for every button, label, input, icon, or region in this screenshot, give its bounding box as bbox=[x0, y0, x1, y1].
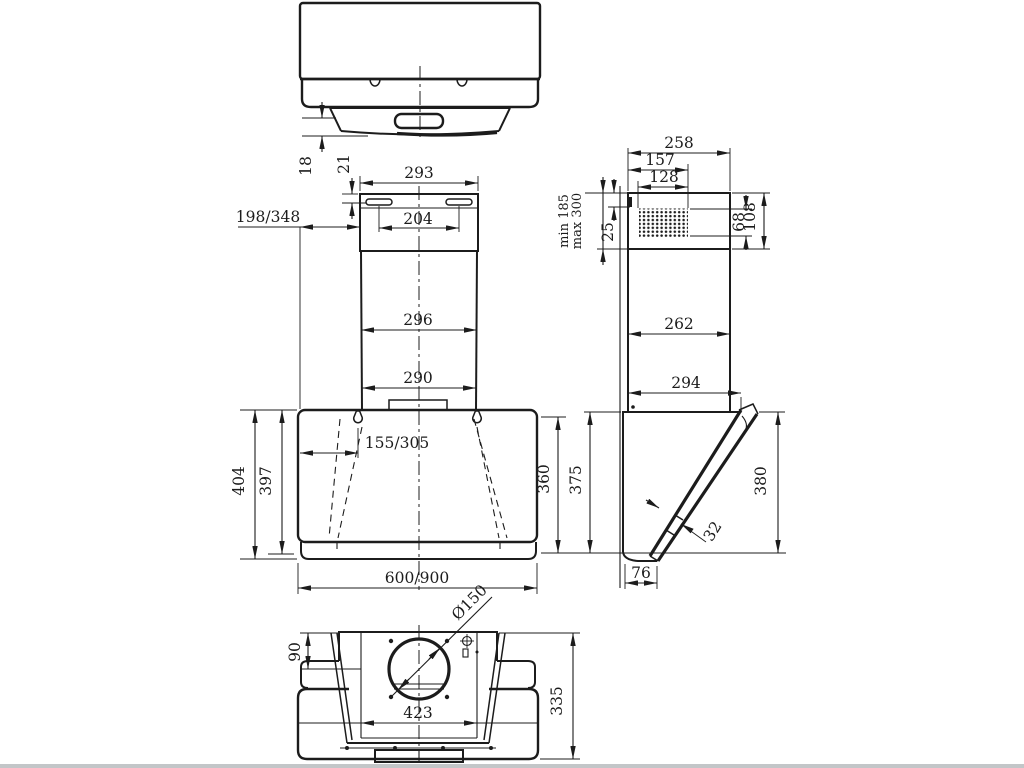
dim-404-label: 404 bbox=[230, 466, 248, 496]
drawing-page: 18 21 293 204 198/348 296 290 155/305 bbox=[0, 0, 1024, 768]
dim-375-label: 375 bbox=[567, 465, 585, 495]
dim-max-300-label: max 300 bbox=[570, 193, 585, 249]
filter-frame-slants bbox=[331, 633, 505, 743]
glass-top-cap bbox=[739, 404, 758, 414]
dim-296-label: 296 bbox=[403, 311, 433, 329]
dim-423-label: 423 bbox=[403, 704, 433, 722]
bottom-left-wing bbox=[301, 661, 339, 688]
cable-gland-detail bbox=[460, 634, 479, 657]
screw-dot bbox=[345, 746, 349, 750]
glass-hidden-edge-left-1 bbox=[329, 419, 340, 538]
dim-335-label: 335 bbox=[548, 686, 566, 716]
side-mount-slot bbox=[628, 197, 632, 207]
dim-21-label: 21 bbox=[335, 154, 353, 174]
outlet-screw-dot bbox=[445, 695, 449, 699]
dim-90-label: 90 bbox=[286, 642, 304, 662]
dim-25-label: 25 bbox=[599, 222, 617, 242]
dim-18-label: 18 bbox=[297, 156, 315, 176]
glass-hidden-edge-right-1 bbox=[474, 419, 507, 538]
dim-204-label: 204 bbox=[403, 210, 433, 228]
hood-body-front bbox=[298, 410, 537, 542]
top-view-vent-slot bbox=[395, 114, 443, 128]
dim-262-label: 262 bbox=[664, 315, 694, 333]
top-view bbox=[300, 3, 540, 140]
chimney-slot-right bbox=[446, 199, 472, 205]
duct-cover-plate bbox=[389, 400, 447, 410]
dim-157-label: 157 bbox=[645, 151, 675, 169]
dim-360-label: 360 bbox=[535, 464, 553, 494]
glass-connector-1 bbox=[675, 515, 683, 520]
bottom-rear-section bbox=[339, 632, 497, 661]
dim-293-label: 293 bbox=[404, 164, 434, 182]
glass-pivot-arc bbox=[742, 416, 746, 431]
image-footer-strip bbox=[0, 764, 1024, 768]
dim-397-label: 397 bbox=[257, 466, 275, 496]
dim-380-label: 380 bbox=[752, 466, 770, 496]
outlet-screw-dot bbox=[389, 639, 393, 643]
glass-connector-2 bbox=[666, 530, 674, 535]
top-view-canopy-shadow bbox=[397, 133, 497, 136]
dim-76-label: 76 bbox=[631, 564, 651, 582]
dim-600-900-label: 600/900 bbox=[385, 569, 449, 587]
chimney-slot-left bbox=[366, 199, 392, 205]
vent-grille bbox=[639, 209, 688, 238]
dim-198-348-label: 198/348 bbox=[236, 208, 300, 226]
dim-258-label: 258 bbox=[664, 134, 694, 152]
bottom-view bbox=[298, 625, 538, 762]
mount-keyhole-left bbox=[354, 411, 363, 423]
dimensions-front-view: 21 293 204 198/348 296 290 155/305 404 3… bbox=[230, 154, 566, 594]
side-screw-dot bbox=[631, 405, 635, 409]
dim-290-label: 290 bbox=[403, 369, 433, 387]
dimensions-side-view: 258 157 128 min 185 max 300 25 68 108 bbox=[541, 134, 786, 589]
glass-hidden-edge-right-2 bbox=[477, 427, 499, 538]
bottom-right-wing bbox=[497, 661, 535, 688]
screw-dot bbox=[489, 746, 493, 750]
dim-108-label: 108 bbox=[741, 202, 759, 232]
technical-drawing-canvas: 18 21 293 204 198/348 296 290 155/305 bbox=[0, 0, 1024, 768]
dim-155-305-label: 155/305 bbox=[365, 434, 429, 452]
dim-294-label: 294 bbox=[671, 374, 701, 392]
dim-128-label: 128 bbox=[649, 168, 679, 186]
